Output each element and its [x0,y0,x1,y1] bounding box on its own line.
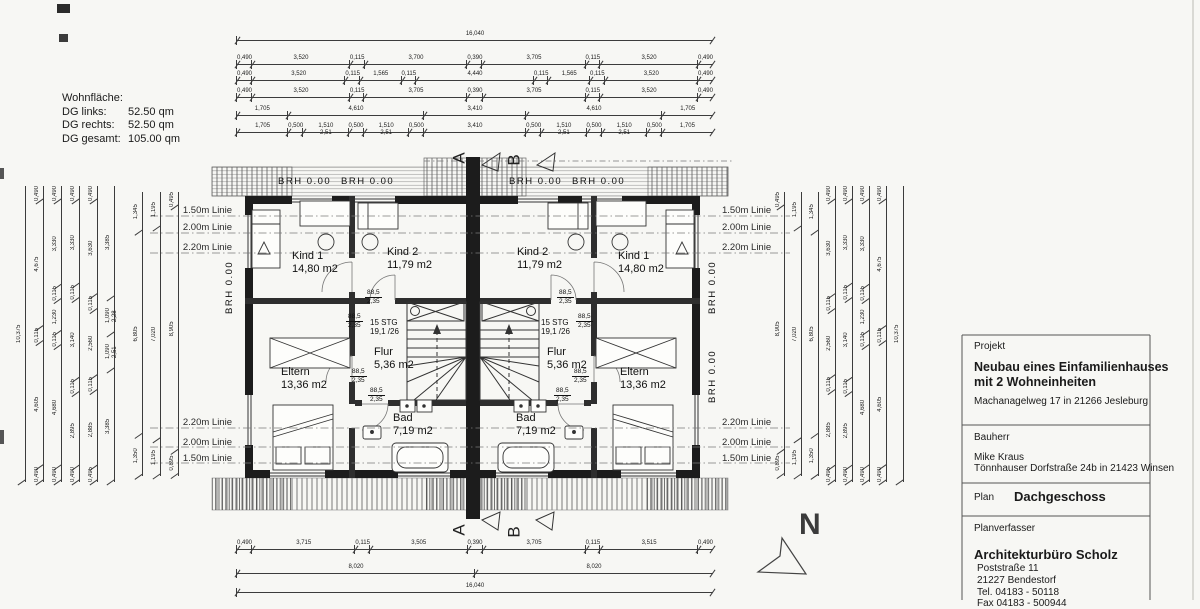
brh-label-left-wall: BRH 0.00 [224,261,235,314]
door-dim-5: 88,52,35 [557,289,574,305]
dim-right-c7: 0,4904,6750,1154,6050,490 [877,186,891,482]
door-dim-6: 88,52,35 [576,313,593,329]
dim-label: 3,705 [364,88,467,104]
dim-bottom-row1: 0,4903,7150,1153,5050,3903,7050,1153,515… [237,540,713,556]
dim-label: 3,630 [826,201,840,296]
dim-label: 3,140 [843,300,857,379]
dim-right-c5: 0,4903,3300,1153,1400,1152,8950,490 [843,186,857,482]
client-address: Tönnhauser Dorfstraße 24b in 21423 Winse… [974,463,1174,474]
dim-label: 0,490 [70,186,84,201]
dim-label: 0,115 [877,328,891,343]
author-label: Planverfasser [974,523,1035,534]
door-dim-3: 88,52,35 [350,368,367,384]
dim-label: 4,680 [860,347,874,467]
dim-label: 6,805 [133,232,147,435]
dim-right-c3: 1,3456,8051,350 [809,192,823,476]
dim-label: 0,500 [349,123,364,139]
dim-label: 0,115 [350,55,365,71]
section-marker-a-bottom: A [450,524,470,535]
dim-label: 0,115 [534,71,549,87]
dim-top-row3: 0,4903,5200,1153,7050,3903,7050,1153,520… [237,88,713,104]
room-kind1-right: Kind 114,80 m2 [618,250,664,276]
staircase-left [407,302,466,400]
dim-label: 10,375 [894,186,908,482]
dim-label: 4,675 [877,201,891,328]
client-name: Mike Kraus [974,452,1024,463]
dim-label: 1,090 2,51 [105,334,119,370]
dim-label: 0,115 [34,328,48,343]
dim-label: 0,490 [698,71,713,87]
dim-label: 0,115 [70,285,84,300]
dim-right-c8: 10,375 [894,186,908,482]
dim-left-c2: 0,4904,6750,1154,6050,490 [34,186,48,482]
room-eltern-left: Eltern13,36 m2 [281,366,327,392]
dim-label: 4,605 [34,342,48,467]
dim-label: 8,905 [775,207,789,451]
dim-label: 3,520 [600,88,698,104]
dim-top-total: 16,040 [237,31,713,47]
dim-top-row5: 1,7050,5001,510 2,510,5001,510 2,510,500… [237,123,713,139]
dim-label: 16,040 [237,583,713,599]
line-150-top-right: 1.50m Linie [722,205,771,216]
dim-label: 1,565 [360,71,402,87]
dim-label: 0,490 [698,55,713,71]
author-tel: Tel. 04183 - 50118 [977,587,1059,598]
line-200-bottom-left: 2.00m Linie [148,437,232,448]
dim-bottom-row2: 8,0208,020 [237,564,713,580]
dim-label: 0,115 [826,377,840,392]
dim-label: 0,490 [698,88,713,104]
section-marker-a-top: A [450,152,470,163]
dim-label: 4,610 [526,106,663,122]
plan-name: Dachgeschoss [1014,489,1106,504]
dim-label: 0,490 [877,467,891,482]
line-220-top-right: 2.20m Linie [722,242,771,253]
room-kind1-left: Kind 114,80 m2 [292,250,338,276]
dim-label: 4,610 [288,106,425,122]
dim-label: 3,705 [483,540,586,556]
area-summary-title: Wohnfläche: [62,92,180,106]
dim-left-c3: 0,4903,3300,1151,2300,1154,6800,490 [52,186,66,482]
dim-label: 0,490 [877,186,891,201]
dim-label: 2,560 [88,310,102,377]
dim-label: 1,510 2,51 [303,123,348,139]
dim-label: 3,705 [482,55,585,71]
line-200-bottom-right: 2.00m Linie [722,437,771,448]
dim-label: 0,490 [826,186,840,201]
dim-bottom-total: 16,040 [237,583,713,599]
door-dim-4: 88,52,35 [368,387,385,403]
client-label: Bauherr [974,432,1010,443]
brh-label-2: BRH 0.00 [341,176,394,187]
dim-label: 2,885 [826,392,840,467]
dim-label: 4,675 [34,201,48,328]
dim-label: 10,375 [16,186,30,482]
dim-left-c4: 0,4903,3300,1153,1400,1152,8950,490 [70,186,84,482]
dim-label: 0,115 [52,332,66,347]
dim-label: 4,605 [877,342,891,467]
dim-label: 1,350 [809,436,823,476]
dim-left-c9: 0,4958,9050,895 [169,192,183,476]
dim-label: 7,020 [792,228,806,440]
dim-label: 3,330 [860,201,874,286]
line-150-bottom-right: 1.50m Linie [722,453,771,464]
section-marker-b-top: B [505,154,525,165]
north-label: N [799,508,821,542]
line-150-bottom-left: 1.50m Linie [148,453,232,464]
area-row-dg-links: DG links: 52.50 qm [62,106,180,120]
dim-label: 3,140 [70,300,84,379]
dim-label: 0,390 [467,88,482,104]
dim-left-c6: 3,3851,090 2,281,090 2,513,385 [105,186,119,482]
dim-label: 8,020 [475,564,713,580]
dim-label: 0,495 [88,467,102,482]
author-street: Poststraße 11 [977,563,1039,574]
scanned-floor-plan-sheet: { "area_summary": { "title": "Wohnfläche… [0,0,1200,600]
dim-label: 1,345 [133,192,147,232]
dim-label: 0,490 [843,467,857,482]
brh-label-right-wall-1: BRH 0.00 [707,261,718,314]
dim-label: 1,195 [792,440,806,476]
dim-top-row4: 1,7054,6103,4104,6101,705 [237,106,713,122]
north-arrow-icon [758,538,806,574]
dim-label: 1,565 [548,71,590,87]
dim-label: 4,680 [52,347,66,467]
dim-label: 0,115 [88,377,102,392]
author-name: Architekturbüro Scholz [974,547,1118,562]
dim-label: 3,520 [600,55,698,71]
dim-label: 3,410 [424,123,526,139]
room-bad-right: Bad7,19 m2 [516,412,556,438]
dim-label: 0,115 [826,296,840,311]
dim-label: 0,115 [590,71,605,87]
staircase-right [480,302,539,400]
dim-label: 0,495 [775,192,789,207]
dim-label: 0,115 [88,296,102,311]
brh-label-4: BRH 0.00 [572,176,625,187]
dim-right-c6: 0,4903,3300,1151,2300,1154,6800,490 [860,186,874,482]
section-marker-b-bottom: B [505,526,525,537]
dim-label: 0,115 [52,286,66,301]
dim-label: 3,330 [70,201,84,285]
stair-label-left: 15 STG19,1 /26 [370,318,399,336]
dim-label: 3,715 [252,540,355,556]
dim-label: 1,350 [133,436,147,476]
plan-label: Plan [974,492,994,503]
area-row-dg-gesamt: DG gesamt: 105.00 qm [62,133,180,147]
dim-label: 16,040 [237,31,713,47]
dim-label: 0,115 [70,379,84,394]
door-dim-1: 88,52,35 [365,289,382,305]
dim-label: 1,510 2,51 [602,123,647,139]
living-area-summary: Wohnfläche: DG links: 52.50 qm DG rechts… [62,92,180,146]
dim-label: 0,390 [468,540,483,556]
dim-label: 4,440 [416,71,534,87]
dim-right-c4: 0,4903,6300,1152,5600,1152,8850,495 [826,186,840,482]
dim-label: 3,385 [105,186,119,298]
dim-label: 0,490 [34,467,48,482]
dim-right-c1: 0,4958,9050,895 [775,192,789,476]
door-dim-8: 88,52,35 [554,387,571,403]
line-150-top-left: 1.50m Linie [148,205,232,216]
dim-label: 0,115 [860,286,874,301]
dim-label: 0,115 [860,332,874,347]
brh-label-right-wall-2: BRH 0.00 [707,350,718,403]
dim-label: 3,630 [88,201,102,296]
dim-right-c2: 1,1957,0201,195 [792,192,806,476]
stair-label-right: 15 STG19,1 /26 [541,318,570,336]
dim-label: 1,510 2,51 [364,123,409,139]
line-200-top-right: 2.00m Linie [722,222,771,233]
dim-top-row1: 0,4903,5200,1153,7000,3903,7050,1153,520… [237,55,713,71]
brh-label-3: BRH 0.00 [509,176,562,187]
dim-label: 2,885 [88,392,102,467]
dim-top-row2: 0,4903,5200,1151,5650,1154,4400,1151,565… [237,71,713,87]
line-220-top-left: 2.20m Linie [148,242,232,253]
dim-label: 3,515 [600,540,698,556]
dim-label: 1,195 [792,192,806,228]
line-220-bottom-left: 2.20m Linie [148,417,232,428]
dim-label: 3,520 [605,71,698,87]
dim-label: 0,490 [52,186,66,201]
dim-label: 3,700 [365,55,468,71]
area-row-dg-rechts: DG rechts: 52.50 qm [62,119,180,133]
dim-left-c8: 1,1957,0201,195 [151,192,165,476]
door-dim-2: 88,52,35 [346,313,363,329]
project-title-line2: mit 2 Wohneinheiten [974,375,1096,389]
room-kind2-left: Kind 211,79 m2 [387,246,432,272]
dim-label: 6,805 [809,232,823,435]
dim-label: 3,330 [52,201,66,286]
dim-label: 0,490 [88,186,102,201]
dim-label: 0,115 [350,88,365,104]
dim-label: 0,490 [843,186,857,201]
dim-label: 8,020 [237,564,475,580]
dim-label: 3,505 [370,540,468,556]
room-bad-left: Bad7,19 m2 [393,412,433,438]
room-kind2-right: Kind 211,79 m2 [517,246,562,272]
dim-label: 0,495 [826,467,840,482]
dim-label: 1,230 [52,301,66,333]
brh-label-1: BRH 0.00 [278,176,331,187]
project-address: Machanagelweg 17 in 21266 Jesleburg [974,396,1148,407]
dim-label: 0,490 [70,467,84,482]
room-eltern-right: Eltern13,36 m2 [620,366,666,392]
dim-label: 2,895 [843,394,857,467]
dim-left-c7: 1,3456,8051,350 [133,192,147,476]
room-flur-left: Flur5,36 m2 [374,346,414,372]
dim-label: 2,560 [826,310,840,377]
dim-label: 1,345 [809,192,823,232]
dim-label: 0,115 [843,285,857,300]
dim-label: 3,330 [843,201,857,285]
line-220-bottom-right: 2.20m Linie [722,417,771,428]
dim-label: 7,020 [151,228,165,440]
dim-label: 0,490 [860,467,874,482]
author-city: 21227 Bendestorf [977,575,1056,586]
dim-label: 1,705 [237,123,288,139]
dim-left-c1: 10,375 [16,186,30,482]
dim-label: 0,115 [843,379,857,394]
project-title-line1: Neubau eines Einfamilienhauses [974,360,1169,374]
dim-label: 3,520 [252,71,345,87]
dim-label: 1,510 2,51 [541,123,586,139]
dim-label: 3,410 [424,106,525,122]
dim-label: 1,705 [662,123,713,139]
line-200-top-left: 2.00m Linie [148,222,232,233]
dim-label: 3,520 [252,55,350,71]
dim-label: 0,490 [52,467,66,482]
dim-label: 3,705 [483,88,586,104]
dim-label: 0,490 [860,186,874,201]
dim-label: 3,385 [105,370,119,482]
dim-label: 0,490 [698,540,713,556]
dim-label: 2,895 [70,394,84,467]
dim-label: 1,090 2,28 [105,298,119,334]
dim-label: 1,705 [237,106,288,122]
dim-left-c5: 0,4903,6300,1152,5600,1152,8850,495 [88,186,102,482]
dim-label: 0,895 [775,451,789,476]
project-label: Projekt [974,341,1005,352]
dim-label: 0,490 [34,186,48,201]
door-dim-7: 88,52,35 [572,368,589,384]
dim-label: 0,500 [587,123,602,139]
dim-label: 3,520 [252,88,350,104]
dim-label: 1,230 [860,301,874,333]
dim-label: 1,705 [662,106,713,122]
